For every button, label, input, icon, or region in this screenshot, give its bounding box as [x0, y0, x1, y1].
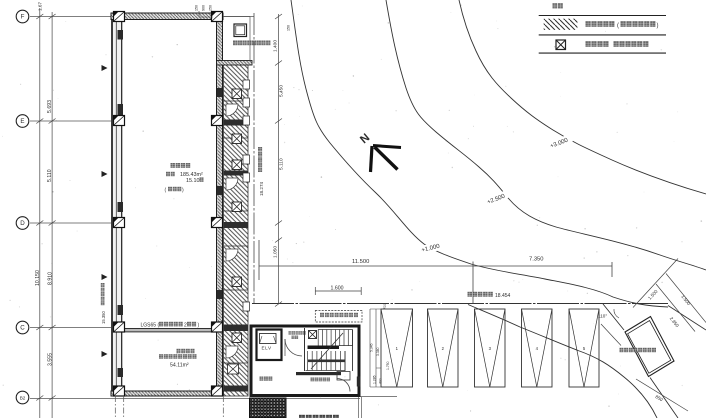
svg-text:18.454: 18.454: [495, 293, 511, 299]
svg-text:D: D: [20, 220, 25, 227]
svg-text:1.67: 1.67: [38, 2, 43, 11]
svg-text:5.110: 5.110: [279, 158, 285, 170]
svg-text:18.274: 18.274: [259, 182, 264, 196]
svg-text:54.11m²: 54.11m²: [170, 363, 189, 369]
svg-text:1.050: 1.050: [273, 246, 279, 258]
svg-text:B2: B2: [20, 396, 26, 401]
svg-text:5.450: 5.450: [279, 85, 285, 97]
svg-text:E: E: [20, 118, 24, 125]
svg-text:15.350: 15.350: [101, 311, 106, 324]
svg-text:250: 250: [209, 5, 213, 11]
svg-text:11.500: 11.500: [352, 259, 369, 265]
svg-text:LGS65 (: LGS65 (: [141, 322, 160, 328]
svg-text:900: 900: [202, 5, 206, 11]
svg-text:C: C: [20, 325, 25, 332]
svg-text:10.150: 10.150: [35, 270, 41, 286]
svg-text:5.110: 5.110: [47, 169, 53, 182]
svg-text:1.600: 1.600: [331, 286, 344, 292]
svg-text:1.750: 1.750: [386, 361, 390, 370]
svg-text:3.555: 3.555: [48, 353, 54, 366]
svg-text:150: 150: [287, 25, 291, 31]
svg-text:150: 150: [195, 5, 199, 11]
svg-text:1.400: 1.400: [273, 40, 279, 52]
svg-text:15.10: 15.10: [186, 178, 200, 184]
svg-text:7.350: 7.350: [529, 257, 544, 263]
svg-text:430: 430: [379, 378, 383, 384]
svg-text:2: 2: [184, 322, 187, 328]
svg-text:(: (: [617, 23, 619, 29]
svg-text:110°: 110°: [598, 314, 607, 319]
svg-text:): ): [657, 23, 659, 29]
svg-text:700: 700: [383, 304, 387, 310]
svg-text:5.693: 5.693: [47, 100, 53, 113]
svg-text:ELV: ELV: [262, 346, 272, 351]
svg-text:3.380: 3.380: [376, 347, 380, 356]
svg-text:8.910: 8.910: [48, 272, 54, 285]
svg-text:F: F: [21, 14, 25, 21]
